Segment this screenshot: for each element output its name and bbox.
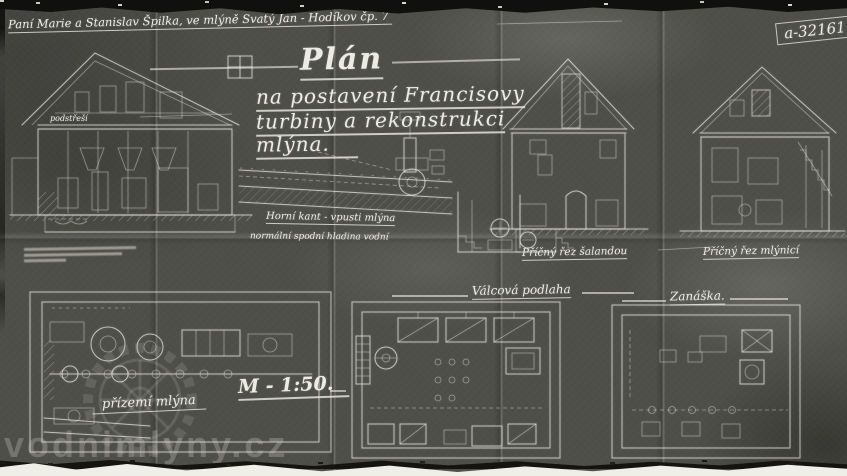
floor-zanaska-label: Zanáška. bbox=[670, 289, 725, 306]
decorative-line bbox=[392, 295, 468, 297]
upper-weir-label: Horní kant - vpusti mlýna bbox=[266, 211, 396, 226]
roller-floor-plan bbox=[352, 302, 560, 458]
attic-label: podstřeší bbox=[50, 114, 88, 123]
section-salanda-label: Příčný řez šalandou bbox=[522, 245, 628, 261]
title-line-1: Plán bbox=[300, 41, 384, 80]
scale-label: M - 1:50. bbox=[238, 372, 350, 401]
water-level-label: normální spodní hladina vodní bbox=[250, 231, 389, 242]
decorative-line bbox=[730, 298, 788, 300]
mill-section-left bbox=[10, 53, 252, 232]
watermark-text: vodnimlyny.cz bbox=[4, 424, 288, 466]
edge-specks-bottom bbox=[0, 462, 5, 464]
mlynice-section bbox=[680, 67, 845, 237]
section-mlynice-label: Příčný řez mlýnicí bbox=[703, 244, 799, 260]
decorative-line bbox=[582, 292, 634, 294]
edge-specks-top bbox=[0, 0, 4, 2]
blueprint-photo: Paní Marie a Stanislav Špilka, ve mlýně … bbox=[0, 0, 847, 476]
decorative-line bbox=[622, 300, 666, 302]
torn-edge-left bbox=[0, 0, 5, 476]
zanaska-floor-plan bbox=[612, 305, 800, 458]
tail-race-pit bbox=[458, 192, 520, 252]
title-line-4: mlýna. bbox=[256, 131, 358, 159]
floor-rollers-label: Válcová podlaha bbox=[472, 282, 571, 300]
